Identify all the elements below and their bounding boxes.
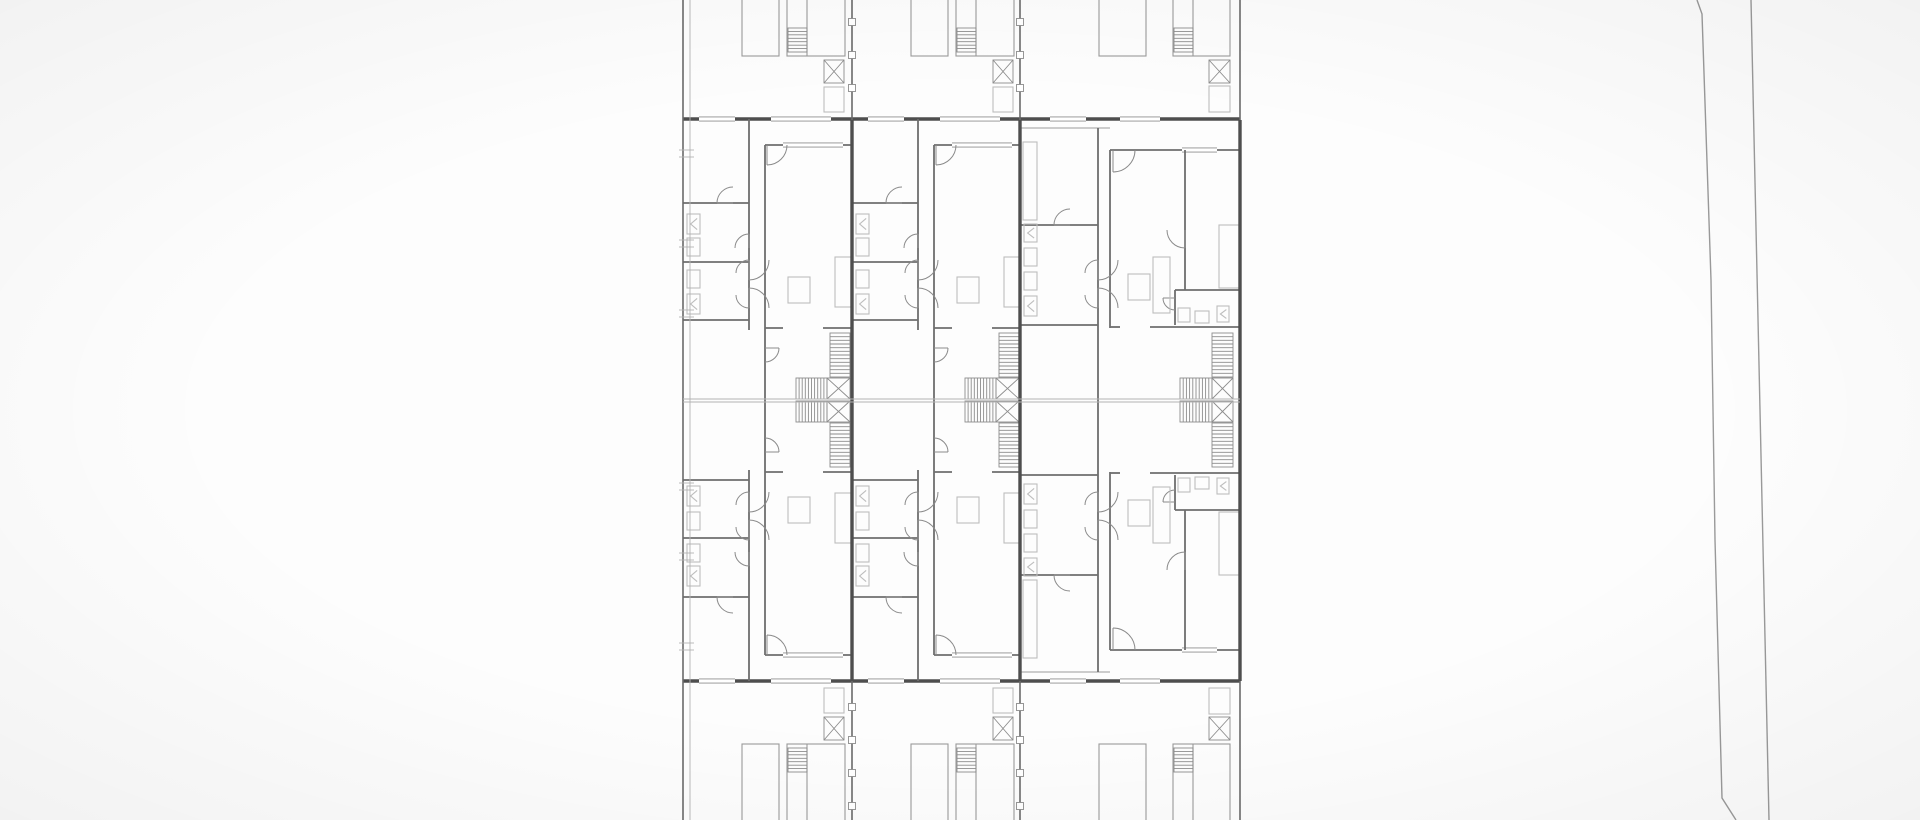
fence-post bbox=[849, 770, 856, 777]
shower bbox=[1217, 478, 1229, 494]
shower bbox=[1024, 224, 1037, 242]
table bbox=[788, 497, 810, 523]
wardrobe bbox=[1023, 142, 1037, 220]
service-box bbox=[1209, 86, 1230, 112]
fence-post bbox=[1017, 52, 1024, 59]
wc bbox=[856, 270, 869, 288]
door-swing bbox=[1085, 295, 1098, 308]
unit-south-2 bbox=[852, 400, 1021, 684]
shed bbox=[742, 0, 779, 56]
shower bbox=[856, 294, 869, 314]
service-box bbox=[824, 87, 844, 112]
fence-post bbox=[1017, 19, 1024, 26]
wc bbox=[856, 512, 869, 530]
table bbox=[1128, 274, 1150, 300]
door-swing bbox=[886, 597, 902, 613]
kitchen-counter bbox=[835, 257, 851, 307]
wardrobe bbox=[1219, 512, 1239, 575]
door-swing bbox=[1113, 150, 1135, 172]
door-swing bbox=[1085, 527, 1098, 540]
shower bbox=[856, 486, 869, 506]
kitchen-counter bbox=[1004, 493, 1020, 543]
shower-mark bbox=[691, 490, 698, 501]
shower-mark bbox=[860, 570, 867, 581]
basin bbox=[1195, 477, 1209, 489]
shower bbox=[687, 486, 700, 506]
stair-enclosure bbox=[1173, 744, 1230, 820]
shower-mark bbox=[860, 490, 867, 501]
door-swing bbox=[918, 260, 938, 280]
floor-plan-canvas bbox=[0, 0, 1920, 820]
shower-mark bbox=[1028, 300, 1035, 311]
shower bbox=[687, 566, 700, 586]
door-swing bbox=[736, 295, 749, 308]
shower bbox=[1024, 296, 1037, 316]
wc bbox=[1178, 478, 1190, 492]
shed bbox=[1099, 744, 1146, 820]
shower-mark bbox=[1028, 228, 1035, 238]
fence-post bbox=[1017, 704, 1024, 711]
door-swing bbox=[749, 288, 769, 308]
wc bbox=[1024, 510, 1037, 528]
door-swing bbox=[918, 492, 938, 512]
fence-post bbox=[849, 737, 856, 744]
fence-post bbox=[1017, 803, 1024, 810]
kitchen-counter bbox=[835, 493, 851, 543]
courtyard-north-2 bbox=[911, 0, 1014, 112]
service-box bbox=[993, 87, 1013, 112]
door-swing bbox=[1167, 230, 1185, 248]
fence-post bbox=[1017, 770, 1024, 777]
service-box bbox=[824, 688, 844, 713]
table bbox=[1128, 500, 1150, 526]
door-swing bbox=[1113, 628, 1135, 650]
courtyard-south-2 bbox=[911, 688, 1014, 820]
courtyard-south-3 bbox=[1099, 688, 1230, 820]
door-swing bbox=[1054, 209, 1070, 225]
fence-post bbox=[1017, 737, 1024, 744]
shower bbox=[687, 294, 700, 314]
wc bbox=[1024, 248, 1037, 266]
shower bbox=[1024, 558, 1037, 576]
shower-mark bbox=[691, 218, 698, 229]
courtyard-north-1 bbox=[742, 0, 845, 112]
door-swing bbox=[749, 260, 769, 280]
door-swing bbox=[749, 492, 769, 512]
fence-post bbox=[849, 85, 856, 92]
door-swing bbox=[934, 438, 948, 452]
wc bbox=[1024, 272, 1037, 290]
door-swing bbox=[934, 348, 948, 362]
shower bbox=[856, 566, 869, 586]
shed bbox=[742, 744, 779, 820]
shower-mark bbox=[1220, 482, 1226, 491]
door-swing bbox=[717, 187, 733, 203]
fence-post bbox=[849, 704, 856, 711]
basin bbox=[1195, 311, 1209, 323]
door-swing bbox=[1098, 260, 1118, 280]
door-swing bbox=[904, 552, 918, 566]
door-swing bbox=[1167, 552, 1185, 570]
shed bbox=[911, 744, 948, 820]
shower bbox=[1024, 484, 1037, 504]
unit-south-3 bbox=[1020, 400, 1240, 684]
door-swing bbox=[765, 348, 779, 362]
door-swing bbox=[735, 552, 749, 566]
door-swing bbox=[717, 597, 733, 613]
table bbox=[957, 497, 979, 523]
wc bbox=[1024, 534, 1037, 552]
shed bbox=[1099, 0, 1146, 56]
unit-south-1 bbox=[683, 400, 852, 684]
shower bbox=[1217, 306, 1229, 322]
door-swing bbox=[1163, 298, 1175, 310]
courtyard-south-1 bbox=[742, 688, 845, 820]
fence-post bbox=[849, 52, 856, 59]
door-swing bbox=[918, 520, 938, 540]
door-swing bbox=[1098, 492, 1118, 512]
door-swing bbox=[1098, 288, 1118, 308]
service-box bbox=[993, 688, 1013, 713]
shower bbox=[856, 214, 869, 234]
wardrobe bbox=[1219, 225, 1239, 288]
table bbox=[957, 277, 979, 303]
shower-mark bbox=[1028, 488, 1035, 499]
unit-north-3 bbox=[1020, 116, 1240, 400]
road-kerb-inner bbox=[1697, 0, 1736, 820]
door-swing bbox=[1085, 260, 1098, 273]
door-swing bbox=[918, 288, 938, 308]
unit-north-1 bbox=[683, 116, 852, 400]
door-swing bbox=[1098, 520, 1118, 540]
fence-post bbox=[849, 803, 856, 810]
stair-enclosure bbox=[956, 744, 1014, 820]
road-kerb-outer bbox=[1751, 0, 1769, 820]
shower-mark bbox=[1220, 310, 1226, 319]
wc bbox=[856, 238, 869, 256]
fence-post bbox=[1017, 85, 1024, 92]
shower-mark bbox=[860, 218, 867, 229]
door-swing bbox=[749, 520, 769, 540]
shed bbox=[911, 0, 948, 56]
floor-plan-page bbox=[0, 0, 1920, 820]
door-swing bbox=[886, 187, 902, 203]
wardrobe bbox=[1023, 580, 1037, 658]
door-swing bbox=[736, 492, 749, 505]
door-swing bbox=[905, 295, 918, 308]
fence-post bbox=[849, 19, 856, 26]
wc bbox=[856, 544, 869, 562]
door-swing bbox=[735, 234, 749, 248]
service-box bbox=[1209, 688, 1230, 714]
table bbox=[788, 277, 810, 303]
wc bbox=[1178, 308, 1190, 322]
shower bbox=[687, 214, 700, 234]
kitchen-counter bbox=[1004, 257, 1020, 307]
shower-mark bbox=[1028, 562, 1035, 572]
door-swing bbox=[905, 492, 918, 505]
door-swing bbox=[1085, 492, 1098, 505]
wc bbox=[687, 270, 700, 288]
shower-mark bbox=[691, 298, 698, 309]
door-swing bbox=[1163, 490, 1175, 502]
shower-mark bbox=[691, 570, 698, 581]
shower-mark bbox=[860, 298, 867, 309]
door-swing bbox=[1054, 575, 1070, 591]
courtyard-north-3 bbox=[1099, 0, 1230, 112]
unit-north-2 bbox=[852, 116, 1021, 400]
kitchen-counter bbox=[1153, 257, 1170, 313]
door-swing bbox=[765, 438, 779, 452]
door-swing bbox=[904, 234, 918, 248]
wc bbox=[687, 512, 700, 530]
stair-enclosure bbox=[787, 744, 845, 820]
kitchen-counter bbox=[1153, 487, 1170, 543]
